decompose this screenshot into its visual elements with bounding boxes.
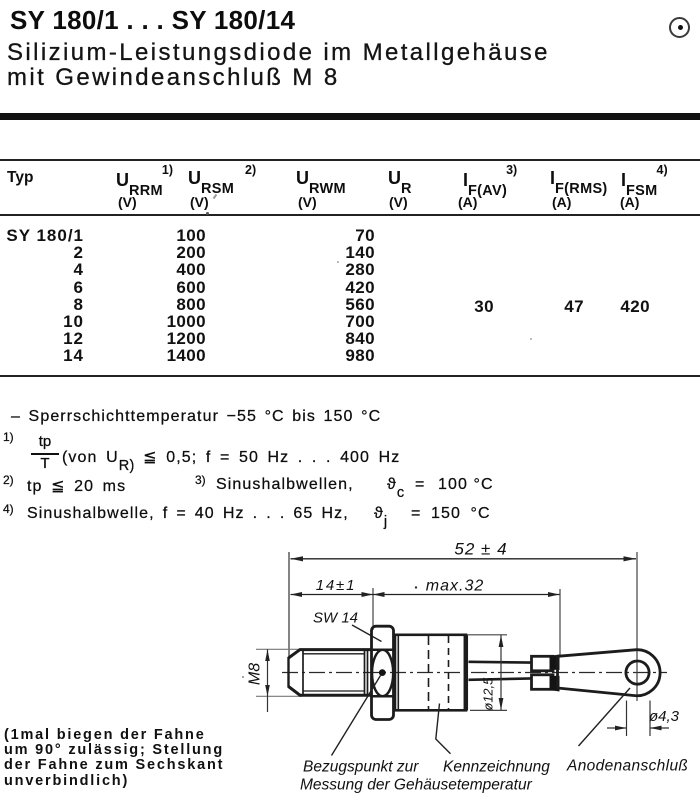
svg-text:Anodenanschluß: Anodenanschluß (566, 758, 688, 775)
svg-text:ø12,5: ø12,5 (481, 677, 496, 711)
svg-text:Bezugspunkt zur: Bezugspunkt zur (303, 759, 419, 776)
svg-text:M8: M8 (247, 663, 264, 685)
svg-text:Kennzeichnung: Kennzeichnung (443, 759, 550, 776)
svg-text:SW 14: SW 14 (313, 610, 358, 627)
svg-text:max.32: max.32 (426, 578, 484, 595)
svg-text:52 ± 4: 52 ± 4 (454, 540, 507, 559)
svg-text:Messung der Gehäusetemperatur: Messung der Gehäusetemperatur (300, 777, 533, 794)
svg-text:14±1: 14±1 (316, 577, 356, 594)
svg-text:ø4,3: ø4,3 (649, 708, 680, 725)
